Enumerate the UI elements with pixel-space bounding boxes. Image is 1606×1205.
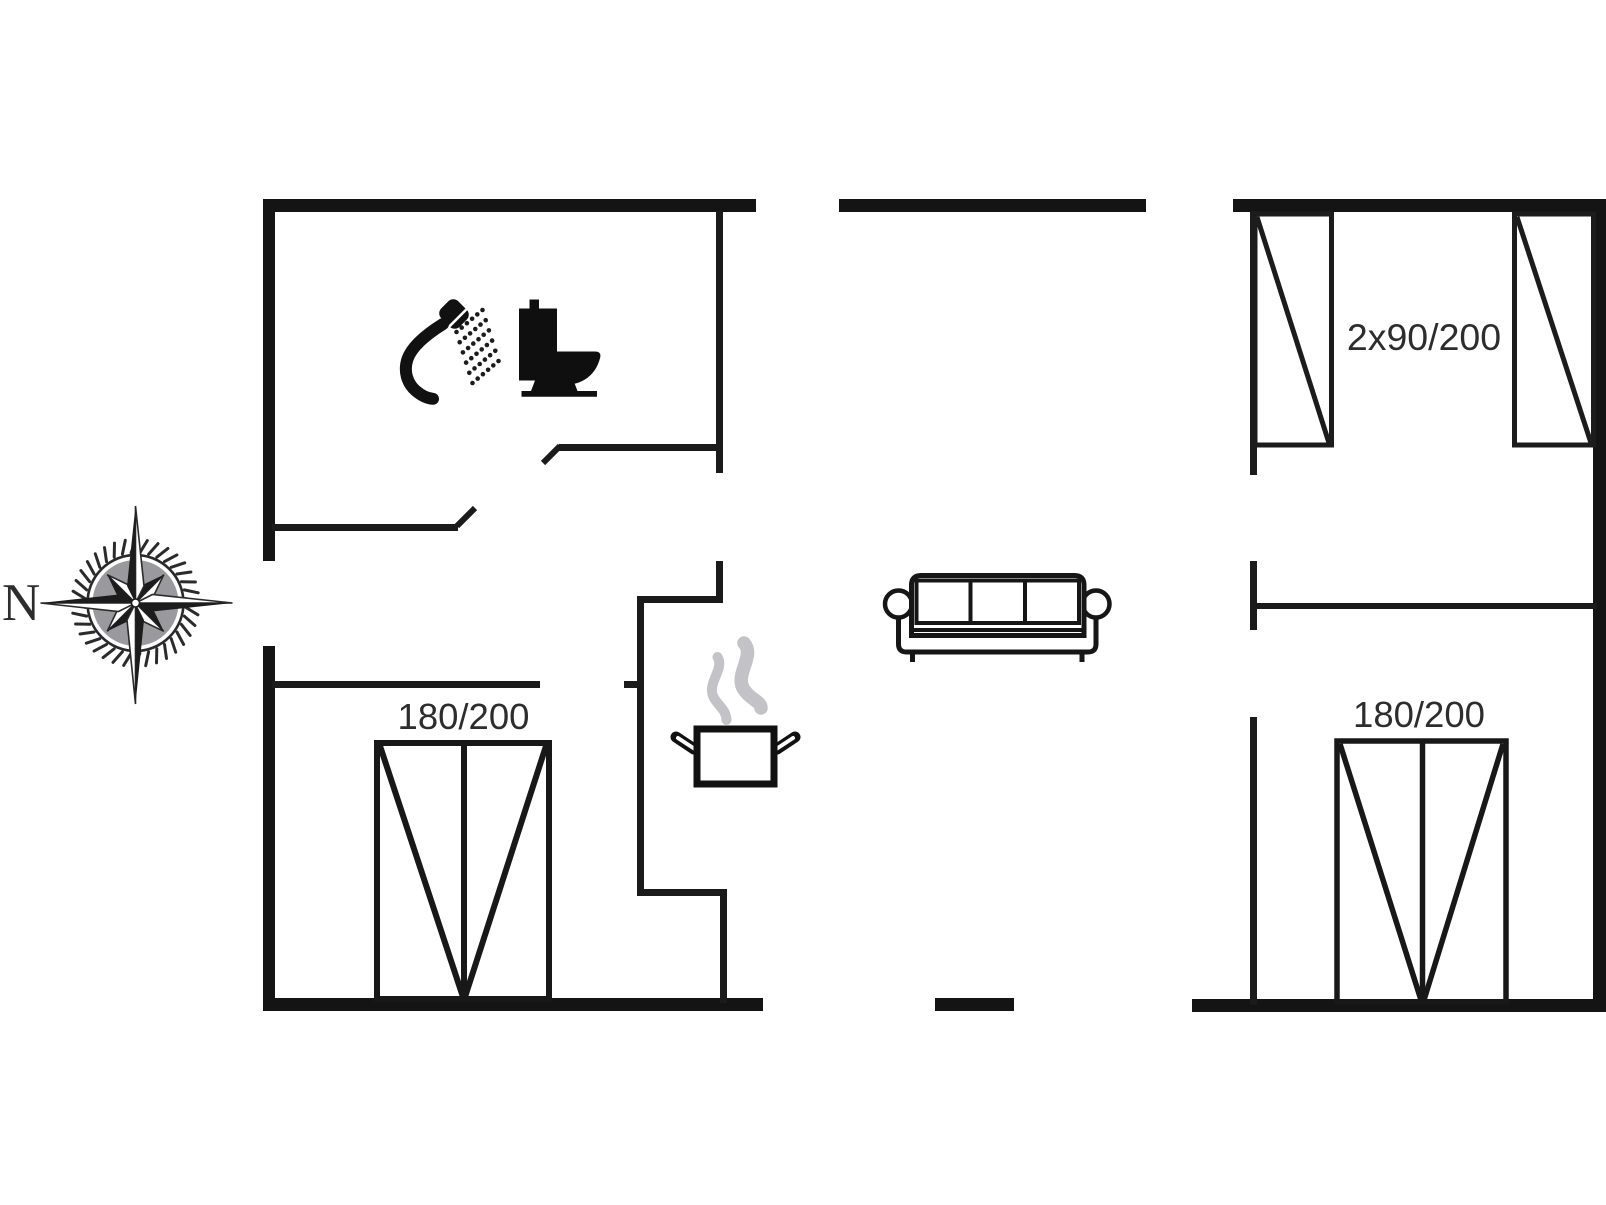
- svg-text:180/200: 180/200: [398, 696, 530, 737]
- svg-text:180/200: 180/200: [1353, 694, 1485, 735]
- svg-text:N: N: [2, 574, 40, 632]
- svg-text:2x90/200: 2x90/200: [1347, 316, 1501, 358]
